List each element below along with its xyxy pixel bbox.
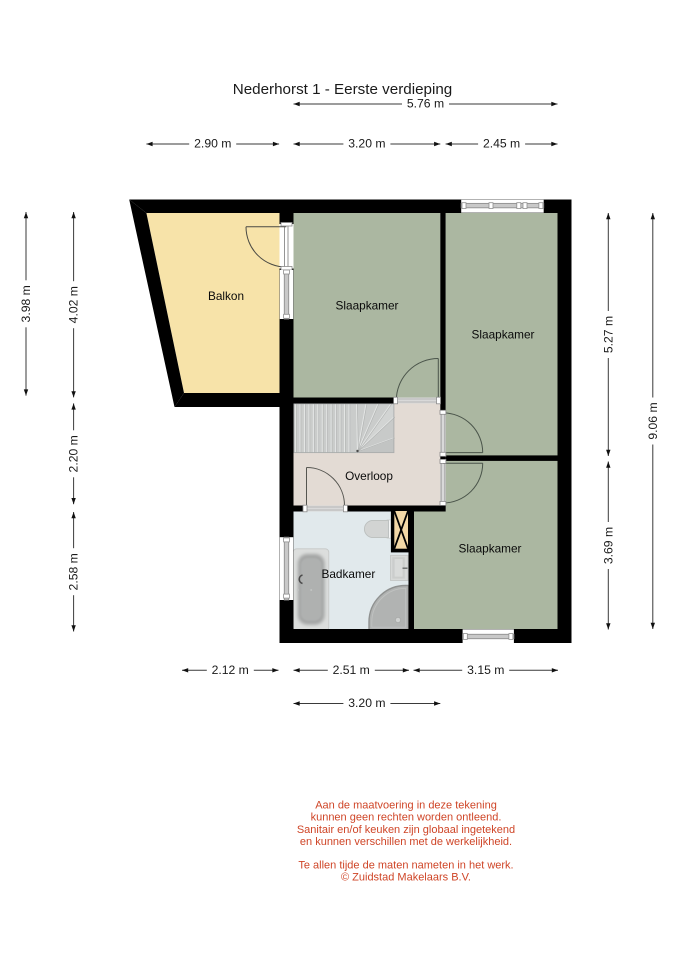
svg-text:2.45 m: 2.45 m xyxy=(483,137,520,151)
svg-text:Slaapkamer: Slaapkamer xyxy=(336,298,399,312)
svg-text:2.51 m: 2.51 m xyxy=(333,663,370,677)
svg-text:© Zuidstad Makelaars B.V.: © Zuidstad Makelaars B.V. xyxy=(341,872,471,884)
svg-text:9.06 m: 9.06 m xyxy=(646,402,660,439)
svg-text:en kunnen verschillen met de w: en kunnen verschillen met de werkelijkhe… xyxy=(300,836,512,848)
svg-text:Aan de maatvoering in deze tek: Aan de maatvoering in deze tekening xyxy=(315,799,497,811)
svg-text:2.20 m: 2.20 m xyxy=(67,435,81,472)
svg-text:5.27 m: 5.27 m xyxy=(601,316,615,353)
svg-text:Slaapkamer: Slaapkamer xyxy=(459,542,522,556)
svg-text:2.90 m: 2.90 m xyxy=(194,137,231,151)
svg-text:5.76 m: 5.76 m xyxy=(407,97,444,111)
svg-text:Te allen tijde de maten namete: Te allen tijde de maten nameten in het w… xyxy=(298,860,513,872)
svg-text:2.12 m: 2.12 m xyxy=(212,663,249,677)
svg-text:Sanitair en/of keuken zijn glo: Sanitair en/of keuken zijn globaal inget… xyxy=(297,824,515,836)
svg-text:Balkon: Balkon xyxy=(208,289,244,303)
svg-text:4.02 m: 4.02 m xyxy=(67,286,81,323)
svg-text:3.69 m: 3.69 m xyxy=(601,527,615,564)
svg-text:3.20 m: 3.20 m xyxy=(348,137,385,151)
svg-text:3.20 m: 3.20 m xyxy=(348,696,385,710)
svg-text:3.98 m: 3.98 m xyxy=(19,285,33,322)
svg-text:Nederhorst 1 - Eerste verdiepi: Nederhorst 1 - Eerste verdieping xyxy=(233,81,453,98)
svg-text:Badkamer: Badkamer xyxy=(322,567,376,581)
svg-text:2.58 m: 2.58 m xyxy=(67,553,81,590)
svg-text:3.15 m: 3.15 m xyxy=(467,663,504,677)
svg-text:kunnen geen rechten worden ont: kunnen geen rechten worden ontleend. xyxy=(311,812,502,824)
svg-text:Overloop: Overloop xyxy=(345,469,393,483)
svg-text:Slaapkamer: Slaapkamer xyxy=(472,328,535,342)
